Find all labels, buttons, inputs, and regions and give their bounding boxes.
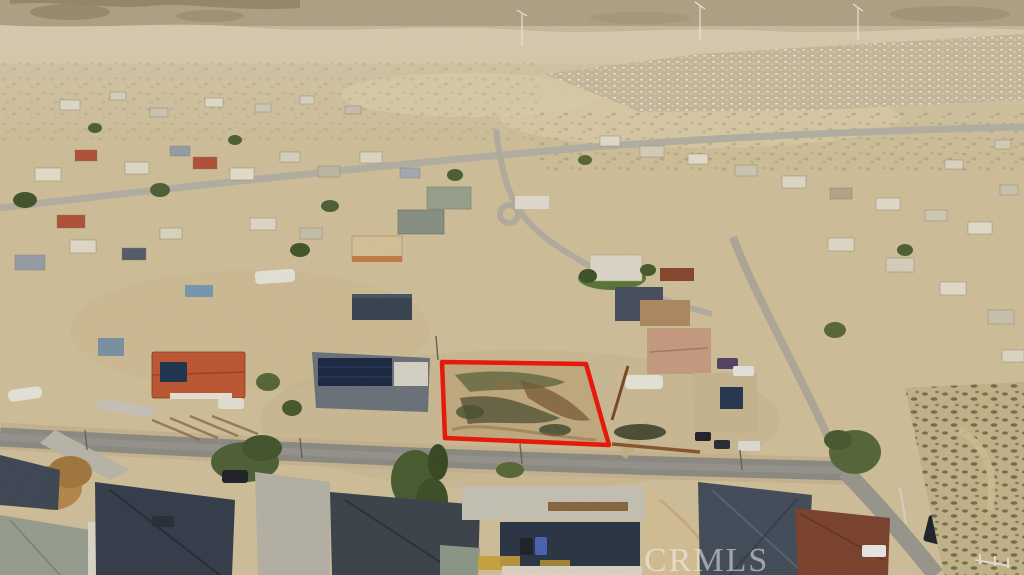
aerial-photo: CRMLS [0,0,1024,575]
film-grain-overlay [0,0,1024,575]
aerial-photo-canvas: CRMLS [0,0,1024,575]
